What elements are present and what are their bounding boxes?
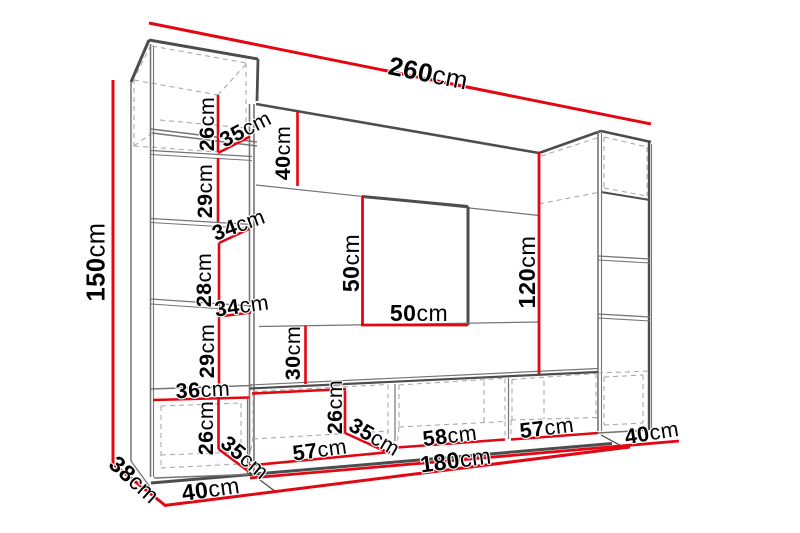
svg-text:150cm: 150cm [82, 222, 110, 301]
svg-text:29cm: 29cm [195, 324, 219, 379]
svg-text:50cm: 50cm [338, 234, 364, 292]
svg-text:40cm: 40cm [271, 126, 295, 181]
svg-text:36cm: 36cm [175, 376, 231, 403]
svg-text:29cm: 29cm [193, 164, 217, 219]
svg-text:30cm: 30cm [281, 326, 305, 381]
svg-text:26cm: 26cm [195, 97, 219, 152]
svg-text:120cm: 120cm [514, 235, 540, 308]
svg-text:26cm: 26cm [194, 401, 218, 456]
svg-text:50cm: 50cm [390, 300, 448, 326]
svg-text:26cm: 26cm [323, 380, 347, 435]
svg-text:28cm: 28cm [192, 253, 216, 308]
